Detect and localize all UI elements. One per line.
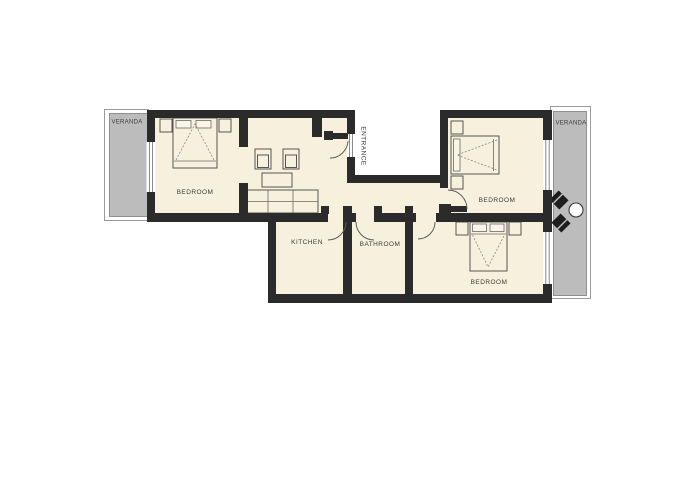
room-label-bedroom-right-bottom: BEDROOM [471,279,508,286]
window-symbol [543,232,552,284]
nightstand-symbol [451,121,463,134]
room-label-bathroom: BATHROOM [360,241,401,248]
window-symbol [543,140,552,190]
room-label-bedroom-right-top: BEDROOM [479,197,516,204]
floor-plan-drawing: VERANDA VERANDA [0,0,700,500]
window-symbol [347,134,355,157]
veranda-right-label: VERANDA [555,121,586,127]
veranda-left-label: VERANDA [111,120,142,126]
armchair-symbol [283,149,299,169]
room-label-entrance: ENTRANCE [360,126,367,166]
nightstand-symbol [219,119,231,132]
veranda-left: VERANDA [105,110,150,221]
coffee-table-symbol [262,173,292,187]
room-label-bedroom-left: BEDROOM [177,189,214,196]
veranda-right: VERANDA [549,107,590,299]
nightstand-symbol [456,222,468,235]
window-symbol [147,142,156,192]
sofa-symbol [243,190,318,213]
room-label-kitchen: KITCHEN [291,239,323,246]
nightstand-symbol [451,176,463,189]
patio-table-icon [569,203,583,217]
floor-plan-page: VERANDA VERANDA [0,0,700,500]
armchair-symbol [255,149,271,169]
nightstand-symbol [160,119,172,132]
nightstand-symbol [509,222,521,235]
